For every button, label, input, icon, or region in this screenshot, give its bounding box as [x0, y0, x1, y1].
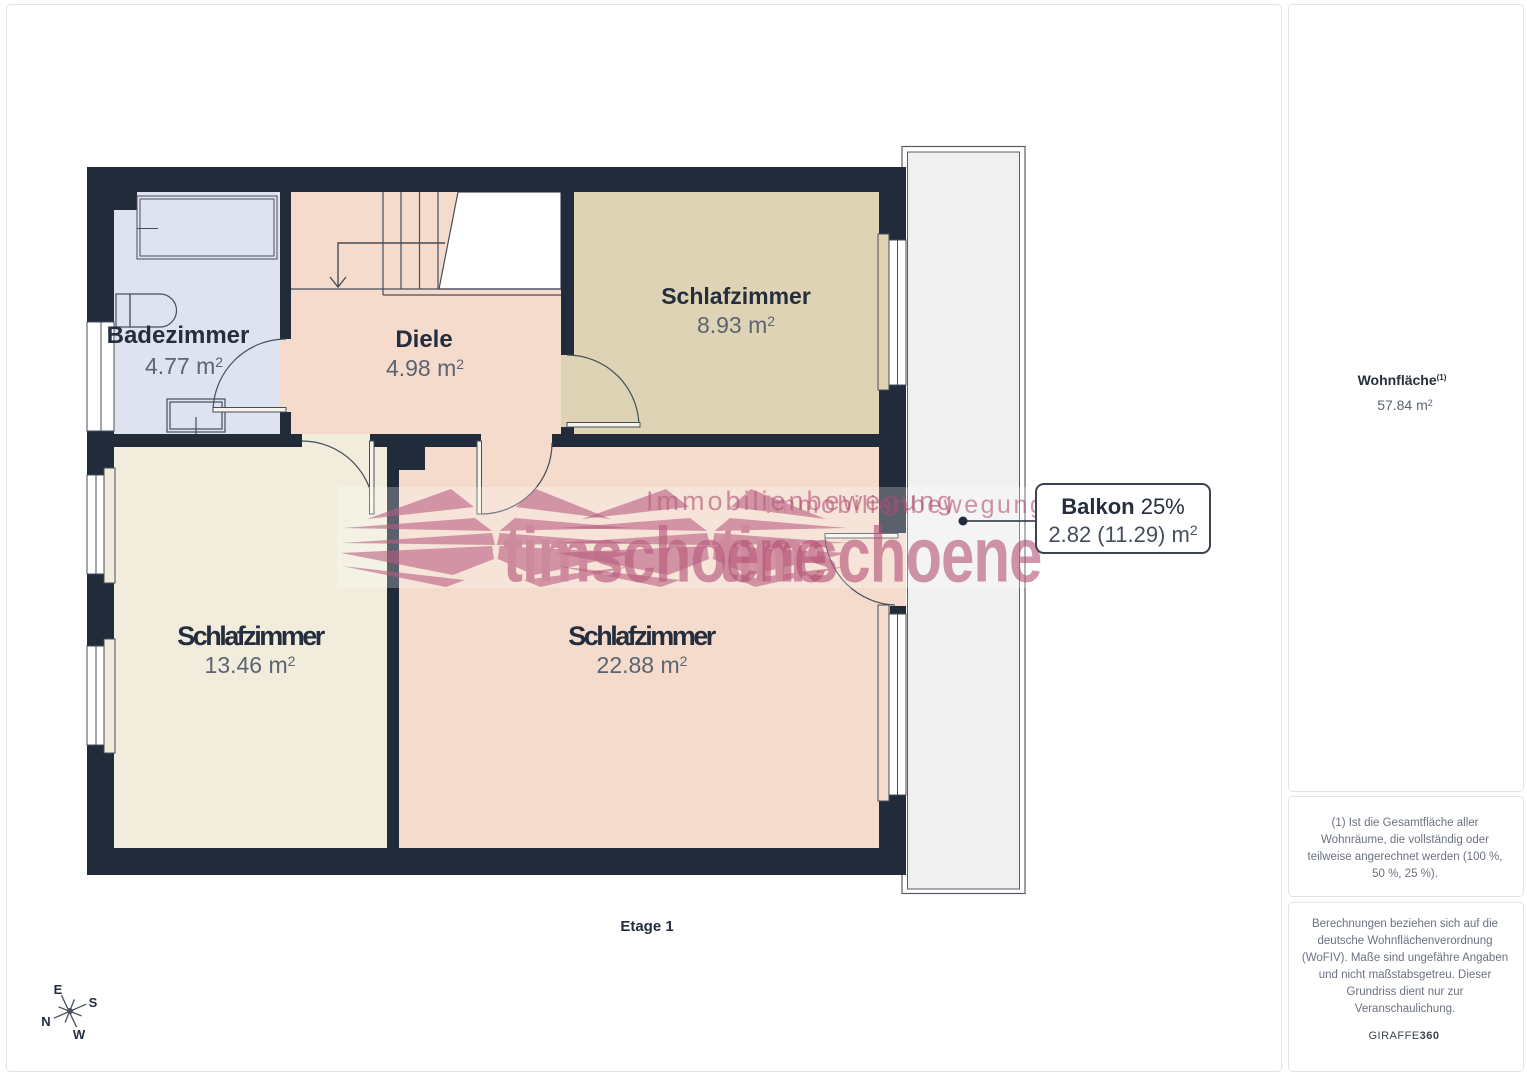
svg-text:13.46 m2: 13.46 m2 [205, 652, 296, 678]
svg-text:Veranschaulichung.: Veranschaulichung. [1355, 1003, 1455, 1015]
svg-text:4.77 m2: 4.77 m2 [145, 353, 223, 379]
svg-text:timschoene: timschoene [718, 511, 1041, 598]
svg-text:Schlafzimmer: Schlafzimmer [177, 621, 326, 651]
svg-text:57.84 m2: 57.84 m2 [1377, 397, 1433, 413]
svg-text:50 %, 25 %).: 50 %, 25 %). [1372, 868, 1438, 880]
svg-text:deutsche Wohnflächenverordnung: deutsche Wohnflächenverordnung [1318, 935, 1493, 947]
svg-text:Balkon 25%: Balkon 25% [1061, 494, 1185, 519]
svg-text:Berechnungen beziehen sich auf: Berechnungen beziehen sich auf die [1312, 918, 1498, 930]
svg-text:S: S [89, 995, 98, 1010]
svg-text:Badezimmer: Badezimmer [107, 322, 250, 349]
svg-text:E: E [54, 982, 63, 997]
svg-text:22.88 m2: 22.88 m2 [597, 652, 688, 678]
svg-text:N: N [41, 1014, 50, 1029]
svg-text:4.98 m2: 4.98 m2 [386, 355, 464, 381]
svg-text:Diele: Diele [395, 326, 452, 353]
svg-text:Schlafzimmer: Schlafzimmer [568, 621, 717, 651]
svg-text:Etage 1: Etage 1 [620, 918, 673, 935]
svg-text:Immobilienbewegung: Immobilienbewegung [765, 491, 1046, 519]
svg-text:und nicht maßstabsgetreu. Dies: und nicht maßstabsgetreu. Dieser [1319, 969, 1492, 981]
svg-text:2.82 (11.29) m2: 2.82 (11.29) m2 [1048, 522, 1197, 547]
svg-text:Wohnräume, die vollständig ode: Wohnräume, die vollständig oder [1321, 834, 1489, 846]
svg-text:W: W [73, 1027, 86, 1042]
svg-text:teilweise angerechnet werden (: teilweise angerechnet werden (100 %, [1308, 851, 1503, 863]
svg-text:(1) Ist die Gesamtfläche aller: (1) Ist die Gesamtfläche aller [1331, 817, 1478, 829]
svg-text:Grundriss dient nur zur: Grundriss dient nur zur [1347, 986, 1464, 998]
svg-text:Schlafzimmer: Schlafzimmer [661, 283, 811, 309]
svg-text:Wohnfläche(1): Wohnfläche(1) [1358, 372, 1447, 388]
svg-text:8.93 m2: 8.93 m2 [697, 312, 775, 338]
svg-text:GIRAFFE360: GIRAFFE360 [1368, 1030, 1439, 1042]
svg-text:(WoFIV). Maße sind ungefähre A: (WoFIV). Maße sind ungefähre Angaben [1302, 952, 1508, 964]
